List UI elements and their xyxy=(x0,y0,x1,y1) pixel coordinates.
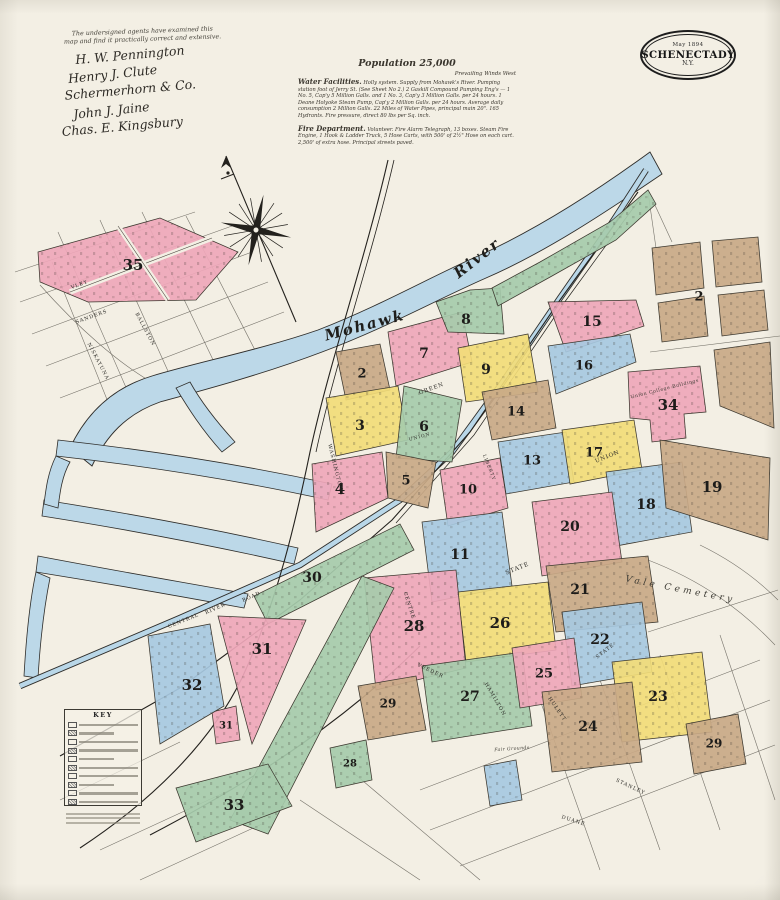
badge-date: May 1894 xyxy=(673,43,704,49)
key-row xyxy=(68,790,138,796)
block-number-30: 30 xyxy=(302,570,322,586)
certification-block: The undersigned agents have examined thi… xyxy=(32,24,256,136)
block-number-15: 15 xyxy=(582,314,601,330)
block-number-14: 14 xyxy=(507,405,525,420)
area-label-fair-grounds: Fair Grounds xyxy=(493,745,530,754)
block-number-23: 23 xyxy=(648,689,667,705)
signature-list: H. W. PenningtonHenry J. CluteSchermerho… xyxy=(33,40,256,136)
key-row xyxy=(68,765,138,771)
block-number-2: 2 xyxy=(357,367,366,382)
title-badge: May 1894 SCHENECTADY N.Y. xyxy=(640,30,736,80)
block-number-32: 32 xyxy=(182,676,203,694)
key-row xyxy=(68,722,138,728)
block-number-29: 29 xyxy=(380,697,397,711)
block-number-18: 18 xyxy=(636,497,655,513)
water-facilities-text: Holly system. Supply from Mohawk's River… xyxy=(298,80,510,119)
key-row xyxy=(68,730,138,736)
block-number-5: 5 xyxy=(401,474,410,489)
blocks-layer xyxy=(38,190,774,842)
block-number-28: 28 xyxy=(404,617,425,635)
key-footnotes xyxy=(66,810,140,824)
block-number-16: 16 xyxy=(575,359,593,374)
block-number-8: 8 xyxy=(461,312,471,328)
map-block-buildings xyxy=(718,290,768,336)
population-note: Population 25,000 xyxy=(298,58,516,69)
block-number-7: 7 xyxy=(419,346,429,362)
map-block-buildings xyxy=(484,760,522,806)
river-braid xyxy=(42,500,298,564)
river-strait xyxy=(176,382,235,452)
street-label-ballston: BALLSTON xyxy=(134,312,157,348)
block-number-31: 31 xyxy=(252,640,273,658)
river-braid xyxy=(56,440,332,500)
block-number-29: 29 xyxy=(706,737,723,751)
key-row xyxy=(68,756,138,762)
street-label-niskayuna: NISKAYUNA xyxy=(86,342,111,381)
compass-rose-icon xyxy=(213,156,298,322)
fire-department-note: Fire Department. Volunteer. Fire Alarm T… xyxy=(298,124,516,147)
key-legend: KEY xyxy=(64,709,142,806)
key-row xyxy=(68,799,138,805)
fire-department-heading: Fire Department. xyxy=(298,124,366,133)
sanborn-map-sheet: 3527891516342361413174510181920112126282… xyxy=(0,0,780,900)
street-label-sanders: SANDERS xyxy=(75,309,108,326)
key-row xyxy=(68,748,138,754)
block-number-34: 34 xyxy=(658,396,679,414)
badge-city: SCHENECTADY xyxy=(641,50,734,60)
block-number-11: 11 xyxy=(450,547,469,563)
block-number-13: 13 xyxy=(523,454,541,469)
water-facilities-note: Water Facilities. Holly system. Supply f… xyxy=(298,77,516,120)
water-facilities-heading: Water Facilities. xyxy=(298,77,362,86)
north-arrow-icon xyxy=(221,156,231,168)
key-row xyxy=(68,773,138,779)
map-block-buildings xyxy=(326,386,408,456)
block-number-9: 9 xyxy=(481,362,491,378)
badge-state: N.Y. xyxy=(682,60,694,67)
block-number-24: 24 xyxy=(578,719,598,735)
map-block-buildings xyxy=(652,242,704,295)
block-number-33: 33 xyxy=(224,796,245,814)
street-label-stanley: STANLEY xyxy=(615,778,646,797)
block-number-21: 21 xyxy=(570,582,589,598)
key-title: KEY xyxy=(68,712,138,719)
block-number-28: 28 xyxy=(343,759,357,770)
block-number-3: 3 xyxy=(355,418,365,434)
river-connector xyxy=(44,456,70,508)
block-number-35: 35 xyxy=(123,256,144,274)
block-number-20: 20 xyxy=(560,519,580,535)
block-number-10: 10 xyxy=(459,483,477,498)
river-outlet xyxy=(24,572,50,678)
map-block-buildings xyxy=(712,237,762,287)
block-number-27: 27 xyxy=(460,689,479,705)
block-number-2: 2 xyxy=(694,290,703,305)
map-block-buildings xyxy=(714,342,774,428)
block-number-26: 26 xyxy=(490,614,511,632)
key-row xyxy=(68,739,138,745)
key-row xyxy=(68,782,138,788)
statistics-block: Population 25,000 Prevailing Winds West … xyxy=(298,58,516,150)
map-block-buildings xyxy=(312,452,388,532)
block-number-19: 19 xyxy=(702,478,723,496)
block-number-31: 31 xyxy=(219,721,233,732)
block-number-25: 25 xyxy=(535,667,553,682)
